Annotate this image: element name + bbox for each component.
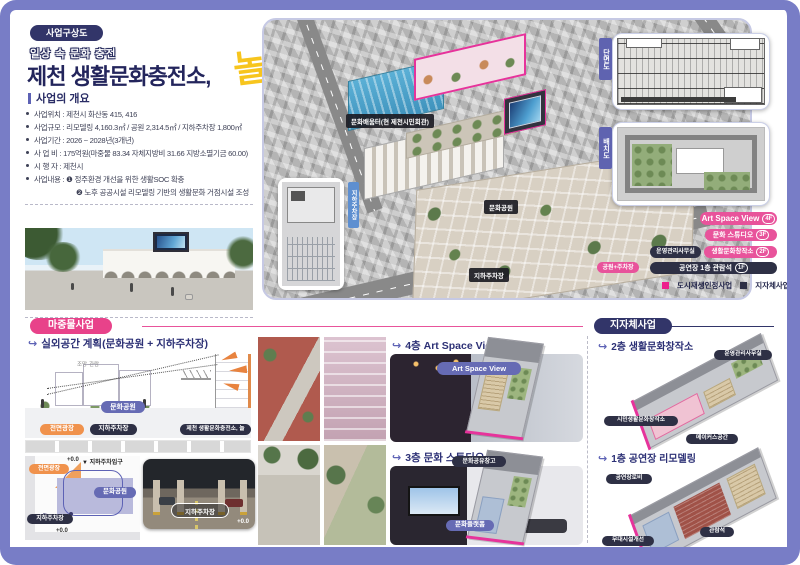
- plan-parking-badge: 지하주차장: [27, 514, 73, 524]
- curved-arrow-icon: ↪: [598, 452, 607, 465]
- arched-facade: [103, 249, 235, 277]
- parking-garage-render: 지하주차장 +0.0: [143, 459, 255, 529]
- render-thumbnail-walkway: [258, 445, 320, 545]
- siteplan-drawing: [617, 127, 765, 201]
- building-label: 문화배움터(현 제천시민회관): [346, 114, 434, 128]
- floor1-heading: ↪ 1층 공연장 리모델링: [598, 450, 696, 465]
- badge-label: 문화공유창고: [462, 459, 495, 465]
- legend-swatch-urban-regen: [662, 282, 669, 289]
- platform-badge: 문화플랫폼: [446, 520, 494, 531]
- garage-label: 지하주차장: [171, 503, 229, 518]
- charging-station-badge: 제천 생활문화충전소, 놀: [180, 424, 251, 435]
- tree-foliage: [43, 242, 83, 272]
- level-note: +0.0: [237, 519, 249, 525]
- badge-label: 시민생활문화창작소: [617, 418, 665, 424]
- stage-badge: 무대시설개선: [602, 536, 654, 546]
- concept-board: 사업구상도 일상 속 문화 충전 제천 생활문화충전소, 놀 사업의 개요 사업…: [0, 0, 800, 565]
- floor1-heading-label: 1층 공연장 리모델링: [611, 450, 696, 465]
- section-drawing-box: [612, 33, 770, 110]
- seats-badge: 관람석: [700, 527, 734, 537]
- media-screen-corner: [504, 89, 546, 135]
- lobby-badge: 공연장로비: [606, 474, 652, 484]
- down-triangle-icon: ▼: [82, 460, 88, 466]
- pedestrian: [171, 287, 174, 296]
- legend: 도시재생인정사업 지자체사업: [662, 280, 790, 291]
- park-green: [704, 172, 750, 190]
- level-note: +0.0: [67, 457, 79, 463]
- overview-item: 사업내용 : ❶ 정주환경 개선을 위한 생활SOC 확충: [34, 174, 264, 185]
- legend-label-municipal: 지자체사업: [755, 280, 790, 291]
- municipal-section-rule: [662, 326, 774, 327]
- citizen-studio-badge: 시민생활문화창작소: [604, 416, 678, 426]
- floor-number: 1F: [735, 263, 748, 273]
- axon-roof-zone: [485, 338, 543, 363]
- curved-arrow-icon: ↪: [392, 339, 401, 352]
- tree-foliage: [225, 236, 253, 270]
- axon-lobby-zone: [642, 512, 679, 555]
- dog: [185, 294, 193, 300]
- parking-stalls: [287, 237, 335, 281]
- floor-number: 4F: [762, 214, 775, 224]
- roof-truss: [181, 370, 211, 380]
- view-note: 조망·관람: [77, 360, 99, 368]
- floor-tag-label: 운영관리사무실: [656, 249, 695, 255]
- pedestrian: [71, 283, 74, 290]
- studio-sofa: [523, 519, 567, 533]
- floor-tag-label: 공연장 1층 관람석: [679, 265, 732, 272]
- office-badge: 운영관리사무실: [714, 350, 772, 360]
- section-ground-bar: [621, 97, 736, 102]
- outdoor-plan-heading-label: 실외공간 계획(문화공원 + 지하주차장): [41, 336, 208, 351]
- outdoor-plan-heading: ↪ 실외공간 계획(문화공원 + 지하주차장): [28, 336, 208, 351]
- plan-hall: [287, 187, 335, 223]
- street-view-render: [25, 228, 253, 310]
- section-drawing: [617, 38, 765, 105]
- remodeled-upper-volume: [414, 33, 526, 101]
- section-notch: [626, 38, 662, 48]
- badge-label: 운영관리사무실: [724, 352, 761, 358]
- floor-tag-park-parking: 공원+주차장: [597, 262, 639, 273]
- front-plaza-badge: 전면광장: [40, 424, 84, 435]
- overview-item: 사업규모 : 리모델링 4,160.3㎡ / 공원 2,314.5㎡ / 지하주…: [34, 122, 264, 133]
- floor-tag-2f: 생활문화창작소 2F: [704, 246, 777, 258]
- render-thumbnail-courtyard: [258, 337, 320, 441]
- legend-label-urban-regen: 도시재생인정사업: [677, 280, 732, 291]
- badge-label: 문화공원: [110, 404, 136, 411]
- municipal-badge-label: 지자체사업: [610, 321, 656, 331]
- badge-label: 공연장로비: [616, 476, 643, 482]
- floor-tag-label: 공원+주차장: [602, 265, 633, 271]
- floor-tag-office: 운영관리사무실: [650, 246, 701, 258]
- axon-room-zone: [703, 378, 736, 409]
- section-notch: [730, 38, 760, 50]
- charging-station-elevation: [215, 354, 251, 408]
- curved-arrow-icon: ↪: [598, 340, 607, 353]
- badge-label: 제천 생활문화충전소, 놀: [186, 427, 244, 433]
- badge-label: 문화플랫폼: [455, 522, 485, 529]
- pedestrian: [130, 283, 133, 292]
- underground-parking-badge: 지하주차장: [90, 424, 137, 435]
- badge-label: 전면광장: [50, 426, 74, 433]
- siteplan-box: [612, 122, 770, 206]
- render-thumbnail-pavilion: [324, 337, 386, 441]
- badge-label: Art Space View: [452, 365, 506, 373]
- badge-label: 무대시설개선: [612, 538, 644, 544]
- parking-entry-label: 지하주차입구: [90, 460, 123, 466]
- badge-label: 관람석: [709, 529, 725, 535]
- section-divider: [587, 336, 588, 543]
- floor-tag-label: 문화 스튜디오: [713, 232, 754, 239]
- parked-car: [159, 497, 175, 505]
- overview-heading: 사업의 개요: [28, 90, 90, 106]
- axon-green-zone: [507, 476, 532, 507]
- floor-tag-1f: 공연장 1층 관람석 1F: [650, 262, 777, 274]
- siteplan-building: [676, 148, 724, 174]
- inset-parking-tab: 지하주차장: [348, 182, 359, 228]
- seed-project-badge: 마중물사업: [30, 318, 112, 334]
- elevation-filmstrip: [25, 440, 251, 453]
- storage-badge: 문화공유창고: [452, 456, 506, 467]
- badge-label: 지하주차장: [99, 426, 129, 433]
- level-note: +0.0: [56, 528, 68, 534]
- overview-item: 사 업 비 : 175억원(마중물 83.34 자체지방비 31.66 지방소멸…: [34, 148, 264, 159]
- culture-park-badge: 문화공원: [101, 401, 145, 413]
- badge-label: 전면광장: [38, 466, 60, 472]
- overview-item: 시 행 자 : 제천시: [34, 161, 264, 172]
- guide-line: [25, 204, 253, 205]
- floor4-heading: ↪ 4층 Art Space View: [392, 338, 499, 353]
- overview-heading-label: 사업의 개요: [36, 90, 90, 106]
- municipal-badge: 지자체사업: [594, 318, 672, 334]
- floor-number: 2F: [756, 247, 769, 257]
- floor-tag-label: 생활문화창작소: [712, 249, 754, 256]
- studio-screen: [408, 486, 460, 516]
- parking-label: 지하주차장: [469, 268, 509, 282]
- floor2-heading: ↪ 2층 생활문화창작소: [598, 338, 693, 353]
- siteplan-tab: 배치도: [599, 127, 612, 169]
- viewer-figure: [41, 399, 44, 408]
- curved-arrow-icon: ↪: [28, 337, 37, 350]
- garage-column: [240, 480, 247, 515]
- heading-bar: [28, 93, 31, 104]
- curved-arrow-icon: ↪: [392, 451, 401, 464]
- plan-road: [25, 532, 140, 540]
- artspace-badge: Art Space View: [437, 362, 521, 375]
- floor-tag-3f: 문화 스튜디오 3F: [705, 229, 777, 241]
- plan-plaza-badge: 전면광장: [29, 464, 69, 474]
- floor-tag-4f: Art Space View 4F: [700, 212, 777, 225]
- maker-space-badge: 메이커스공간: [686, 434, 738, 444]
- section-tab: 단면도: [599, 38, 612, 80]
- overview-item: 사업위치 : 제천시 화산동 415, 416: [34, 109, 264, 120]
- seed-section-rule: [142, 326, 583, 327]
- plan-park-badge: 문화공원: [94, 487, 136, 498]
- badge-label: 지하주차장: [185, 506, 215, 516]
- badge-label: 지하주차장: [36, 516, 64, 522]
- media-screen: [509, 95, 541, 128]
- parking-floorplan: [282, 182, 340, 286]
- render-thumbnail-garden: [324, 445, 386, 545]
- badge-label: 문화공원: [103, 489, 127, 496]
- media-billboard: [153, 232, 189, 252]
- page-title: 제천 생활문화충전소,: [27, 59, 210, 91]
- project-type-badge-label: 사업구상도: [46, 29, 87, 38]
- overview-item: 사업기간 : 2026 ~ 2028년(3개년): [34, 135, 264, 146]
- floor-tag-label: Art Space View: [702, 215, 760, 223]
- project-type-badge: 사업구상도: [30, 25, 103, 41]
- badge-label: 메이커스공간: [696, 436, 728, 442]
- floor-number: 3F: [756, 230, 769, 240]
- parking-entry-note: ▼ 지하주차입구: [82, 457, 123, 466]
- seed-project-badge-label: 마중물사업: [48, 321, 94, 331]
- park-green: [632, 144, 672, 186]
- floor2-heading-label: 2층 생활문화창작소: [611, 338, 693, 353]
- park-label: 문화공원: [484, 200, 518, 214]
- legend-swatch-municipal: [740, 282, 747, 289]
- underground-plan-inset: [278, 178, 344, 290]
